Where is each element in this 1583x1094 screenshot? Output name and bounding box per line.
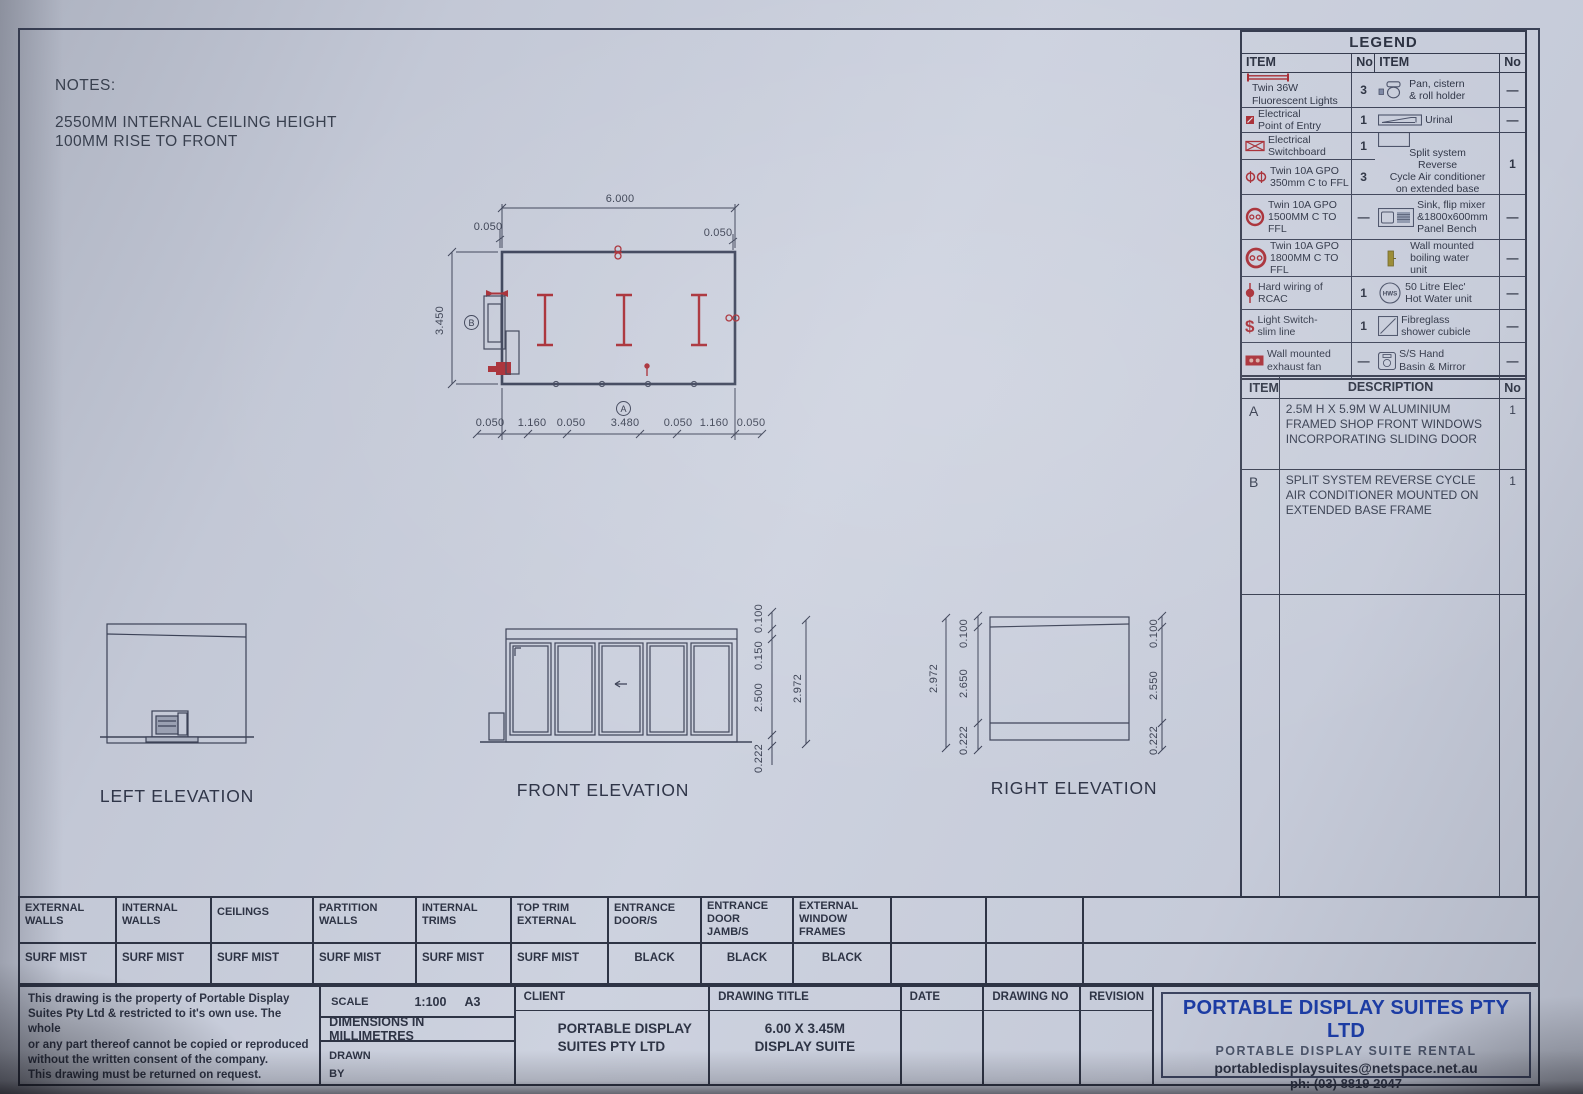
finish-header: EXTERNAL WALLS: [20, 898, 115, 944]
col-item: ITEM: [1242, 377, 1280, 398]
finishes-table: EXTERNAL WALLSSURF MIST INTERNAL WALLSSU…: [18, 896, 1540, 985]
client-cell: CLIENT PORTABLE DISPLAY SUITES PTY LTD: [516, 987, 710, 1084]
dim-label: 0.150: [753, 640, 768, 670]
finish-header: INTERNAL WALLS: [117, 898, 210, 944]
shower-cubicle-icon: [1378, 316, 1398, 336]
company-subtitle: PORTABLE DISPLAY SUITE RENTAL: [1163, 1044, 1529, 1058]
gpo-symbol-right: [726, 315, 739, 321]
legend-row: Split system Reverse Cycle Air condition…: [1375, 133, 1525, 195]
sliding-door-arrow: [615, 681, 627, 687]
legend-row: Wall mounted boiling water unit —: [1375, 240, 1525, 277]
dim-label: 2.550: [1148, 668, 1163, 702]
dim-label: 2.972: [792, 670, 807, 706]
legend-item-count: 3: [1352, 73, 1375, 107]
item-description: 2.5M H X 5.9M W ALUMINIUM FRAMED SHOP FR…: [1280, 399, 1500, 469]
dim-label-bottom: 1.160: [512, 417, 552, 429]
front-elevation-drawing: [480, 600, 820, 775]
point-of-entry-icon: [1245, 115, 1255, 125]
dim-label: 0.100: [958, 620, 973, 648]
company-email: portabledisplaysuites@netspace.net.au: [1163, 1060, 1529, 1076]
legend-item-count: —: [1500, 310, 1525, 342]
dim-label-bottom: 1.160: [694, 417, 734, 429]
left-elevation-drawing: [90, 610, 270, 750]
switchboard-symbol: [488, 362, 511, 375]
svg-text:HWS: HWS: [1383, 291, 1397, 298]
dim-label: 0.222: [958, 724, 973, 756]
legend-item-label: Twin 10A GPO 1800MM C TO FFL: [1270, 240, 1349, 276]
finish-header-empty: [987, 898, 1082, 944]
note-line: 2550MM INTERNAL CEILING HEIGHT: [55, 113, 337, 132]
legend-item-label: Light Switch- slim line: [1257, 314, 1317, 338]
scale-value: 1:100: [414, 995, 446, 1009]
dim-label: 0.100: [1148, 620, 1163, 648]
dim-label: 2.500: [753, 680, 768, 714]
drawing-title-cell: DRAWING TITLE 6.00 X 3.45M DISPLAY SUITE: [710, 987, 901, 1084]
finish-value: BLACK: [609, 944, 700, 983]
finish-header: ENTRANCE DOOR/S: [609, 898, 700, 944]
legend-row: Electrical Point of Entry 1: [1242, 108, 1375, 133]
legend-col-no: No: [1500, 54, 1525, 72]
legend-row: S/S Hand Basin & Mirror —: [1375, 343, 1525, 378]
switchboard-icon: [1245, 140, 1265, 152]
item-count: 1: [1500, 470, 1525, 594]
item-description: SPLIT SYSTEM REVERSE CYCLE AIR CONDITION…: [1280, 470, 1500, 594]
legend-row: Electrical Switchboard 1: [1242, 133, 1375, 160]
dim-label-3450: 3.450: [434, 296, 449, 344]
col-no: No: [1500, 377, 1525, 398]
legend-item-label: Fibreglass shower cubicle: [1401, 314, 1470, 338]
fluorescent-light-symbols: [537, 295, 707, 345]
finish-value: SURF MIST: [20, 944, 115, 983]
company-cell: PORTABLE DISPLAY SUITES PTY LTD PORTABLE…: [1154, 987, 1538, 1084]
legend-col-no: No: [1352, 54, 1375, 72]
legend-item-label: Twin 10A GPO 350mm C to FFL: [1270, 165, 1349, 189]
finish-header: ENTRANCE DOOR JAMB/S: [702, 898, 792, 944]
item-letter: B: [1242, 470, 1280, 594]
dim-label: 2.972: [928, 660, 943, 696]
legend-item-label: Pan, cistern & roll holder: [1409, 78, 1465, 102]
right-elevation-title: RIGHT ELEVATION: [988, 778, 1160, 799]
legend-item-label: Sink, flip mixer &1800x600mm Panel Bench: [1417, 199, 1488, 236]
finish-header: CEILINGS: [212, 898, 312, 944]
finish-header: EXTERNAL WINDOW FRAMES: [794, 898, 890, 944]
drawing-title-label: DRAWING TITLE: [710, 987, 899, 1011]
left-elevation-title: LEFT ELEVATION: [96, 786, 258, 807]
legend-item-count: 1: [1352, 133, 1375, 159]
copyright-cell: This drawing is the property of Portable…: [20, 987, 321, 1084]
item-count: 1: [1500, 399, 1525, 469]
dim-label-offset-left: 0.050: [468, 221, 508, 233]
drawing-sheet: NOTES: 2550MM INTERNAL CEILING HEIGHT 10…: [0, 0, 1583, 1094]
legend-item-label: S/S Hand Basin & Mirror: [1399, 348, 1466, 372]
legend-item-count: —: [1352, 195, 1375, 239]
finish-header: TOP TRIM EXTERNAL: [512, 898, 607, 944]
legend-item-label: Wall mounted exhaust fan: [1267, 348, 1331, 372]
drawing-no-cell: DRAWING NO: [984, 987, 1081, 1084]
legend-col-item: ITEM: [1375, 54, 1500, 72]
legend-row: Wall mounted exhaust fan —: [1242, 343, 1375, 378]
legend-item-count: 1: [1352, 108, 1375, 132]
legend-item-label: Electrical Point of Entry: [1258, 108, 1321, 132]
legend-row: Twin 10A GPO 350mm C to FFL 3: [1242, 160, 1375, 195]
light-switch-symbol: [645, 364, 649, 376]
legend-row: Hard wiring of RCAC 1: [1242, 277, 1375, 310]
finish-header-empty: [892, 898, 985, 944]
legend-item-count: —: [1500, 108, 1525, 132]
legend-row: $ Light Switch- slim line 1: [1242, 310, 1375, 343]
legend-item-count: —: [1500, 240, 1525, 276]
copyright-text: This drawing is the property of Portable…: [20, 987, 319, 1088]
drawing-title-value: 6.00 X 3.45M DISPLAY SUITE: [710, 1011, 899, 1055]
legend-row: Twin 36W Fluorescent Lights 3: [1242, 73, 1375, 108]
item-description-table: ITEM DESCRIPTION No A 2.5M H X 5.9M W AL…: [1240, 375, 1527, 898]
dim-right-left-inner: [974, 612, 982, 754]
title-block: This drawing is the property of Portable…: [18, 985, 1540, 1086]
drawn-by-label: DRAWN BY: [329, 1050, 371, 1080]
dim-label: 0.222: [1148, 724, 1163, 756]
scale-label: SCALE: [331, 996, 368, 1008]
date-cell: DATE: [902, 987, 985, 1084]
finish-header-empty: [1084, 898, 1536, 944]
legend-col-item: ITEM: [1242, 54, 1352, 72]
light-switch-icon: $: [1245, 318, 1254, 335]
hot-water-unit-icon: HWS: [1378, 281, 1402, 305]
front-elevation-title: FRONT ELEVATION: [514, 780, 692, 801]
legend-row: Twin 10A GPO 1500MM C TO FFL —: [1242, 195, 1375, 240]
rcac-hardwire-icon: [1245, 283, 1255, 303]
dim-label: 0.100: [753, 603, 768, 633]
legend-item-label: Twin 36W Fluorescent Lights: [1245, 82, 1338, 106]
description-row: A 2.5M H X 5.9M W ALUMINIUM FRAMED SHOP …: [1242, 399, 1525, 470]
legend-row: Fibreglass shower cubicle —: [1375, 310, 1525, 343]
legend-header: ITEM No ITEM No: [1242, 54, 1525, 73]
company-name: PORTABLE DISPLAY SUITES PTY LTD: [1163, 997, 1529, 1043]
legend-item-count: 1: [1352, 310, 1375, 342]
legend-item-label: Urinal: [1425, 114, 1452, 126]
finish-header: PARTITION WALLS: [314, 898, 415, 944]
finish-value: BLACK: [702, 944, 792, 983]
col-description: DESCRIPTION: [1280, 377, 1500, 398]
legend-item-label: Split system Reverse Cycle Air condition…: [1378, 147, 1497, 194]
sheet-size: A3: [464, 995, 480, 1009]
boiling-water-icon: [1387, 250, 1397, 267]
description-row-empty: [1242, 595, 1525, 896]
finish-value: SURF MIST: [117, 944, 210, 983]
legend-item-count: [1352, 240, 1375, 276]
fluorescent-light-icon: [1245, 73, 1291, 82]
legend-row: Sink, flip mixer &1800x600mm Panel Bench…: [1375, 195, 1525, 240]
finish-header: INTERNAL TRIMS: [417, 898, 510, 944]
dim-label: 0.222: [753, 742, 768, 774]
note-line: 100MM RISE TO FRONT: [55, 132, 337, 151]
dim-label-offset-right: 0.050: [698, 227, 738, 239]
finish-value: BLACK: [794, 944, 890, 983]
gpo-symbol-top: [614, 246, 622, 259]
dim-label: 2.650: [958, 666, 973, 700]
item-letter: A: [1242, 399, 1280, 469]
company-box: PORTABLE DISPLAY SUITES PTY LTD PORTABLE…: [1161, 992, 1531, 1078]
grid-marker-b: B: [464, 315, 479, 330]
split-system-icon: [1378, 133, 1410, 147]
legend-title: LEGEND: [1242, 32, 1525, 54]
hand-basin-icon: [1378, 352, 1396, 370]
dim-label-bottom: 0.050: [551, 417, 591, 429]
legend-row: Urinal —: [1375, 108, 1525, 133]
legend-row: Pan, cistern & roll holder —: [1375, 73, 1525, 108]
legend-item-count: —: [1500, 195, 1525, 239]
company-phone: ph: (03) 8819 2047: [1163, 1076, 1529, 1091]
finish-value-empty: [892, 944, 985, 983]
legend-item-count: —: [1500, 277, 1525, 309]
urinal-icon: [1378, 114, 1422, 126]
grid-marker-a: A: [616, 401, 631, 416]
dim-label-bottom: 0.050: [470, 417, 510, 429]
dim-label-bottom: 0.050: [731, 417, 771, 429]
finish-value-empty: [1084, 944, 1536, 983]
exhaust-fan-icon: [1245, 355, 1264, 366]
revision-cell: REVISION: [1081, 987, 1154, 1084]
toilet-pan-icon: [1378, 81, 1406, 99]
gpo-1500-icon: [1245, 207, 1265, 227]
finish-value: SURF MIST: [212, 944, 312, 983]
legend-table: LEGEND ITEM No ITEM No Twin 36W Fluoresc…: [1240, 30, 1527, 380]
notes-block: 2550MM INTERNAL CEILING HEIGHT 100MM RIS…: [55, 113, 337, 151]
dim-label-bottom: 3.480: [603, 417, 647, 429]
finish-value: SURF MIST: [512, 944, 607, 983]
legend-item-label: 50 Litre Elec' Hot Water unit: [1405, 281, 1472, 305]
dim-label-bottom: 0.050: [658, 417, 698, 429]
legend-item-label: Hard wiring of RCAC: [1258, 281, 1323, 305]
date-label: DATE: [902, 987, 983, 1011]
legend-row: Twin 10A GPO 1800MM C TO FFL: [1242, 240, 1375, 277]
scale-cell: SCALE 1:100 A3 DIMENSIONS IN MILLIMETRES…: [321, 987, 515, 1084]
dim-right-overall: [942, 614, 950, 752]
sink-bench-icon: [1378, 208, 1414, 227]
client-value: PORTABLE DISPLAY SUITES PTY LTD: [516, 1011, 708, 1055]
description-header: ITEM DESCRIPTION No: [1242, 377, 1525, 399]
client-label: CLIENT: [516, 987, 708, 1011]
shopfront-panels: [510, 643, 732, 735]
legend-item-label: Twin 10A GPO 1500MM C TO FFL: [1268, 199, 1349, 236]
dim-front-inner: [768, 608, 776, 765]
description-row: B SPLIT SYSTEM REVERSE CYCLE AIR CONDITI…: [1242, 470, 1525, 595]
legend-item-label: Wall mounted boiling water unit: [1400, 240, 1474, 276]
legend-item-count: 1: [1500, 133, 1525, 194]
gpo-1800-icon: [1245, 247, 1267, 269]
finish-value-empty: [987, 944, 1082, 983]
ac-unit-elevation: [146, 711, 198, 742]
finish-value: SURF MIST: [314, 944, 415, 983]
dimensions-note: DIMENSIONS IN MILLIMETRES: [329, 1015, 505, 1043]
legend-item-count: —: [1352, 343, 1375, 378]
revision-label: REVISION: [1081, 987, 1152, 1011]
legend-row: HWS 50 Litre Elec' Hot Water unit —: [1375, 277, 1525, 310]
drawing-no-label: DRAWING NO: [984, 987, 1079, 1011]
notes-title: NOTES:: [55, 77, 116, 95]
legend-item-count: —: [1500, 73, 1525, 107]
gpo-350-icon: [1245, 171, 1267, 183]
legend-item-count: —: [1500, 343, 1525, 378]
dim-label-6000: 6.000: [598, 193, 642, 205]
legend-item-count: 3: [1352, 160, 1375, 194]
legend-item-count: 1: [1352, 277, 1375, 309]
finish-value: SURF MIST: [417, 944, 510, 983]
legend-item-label: Electrical Switchboard: [1268, 134, 1326, 158]
